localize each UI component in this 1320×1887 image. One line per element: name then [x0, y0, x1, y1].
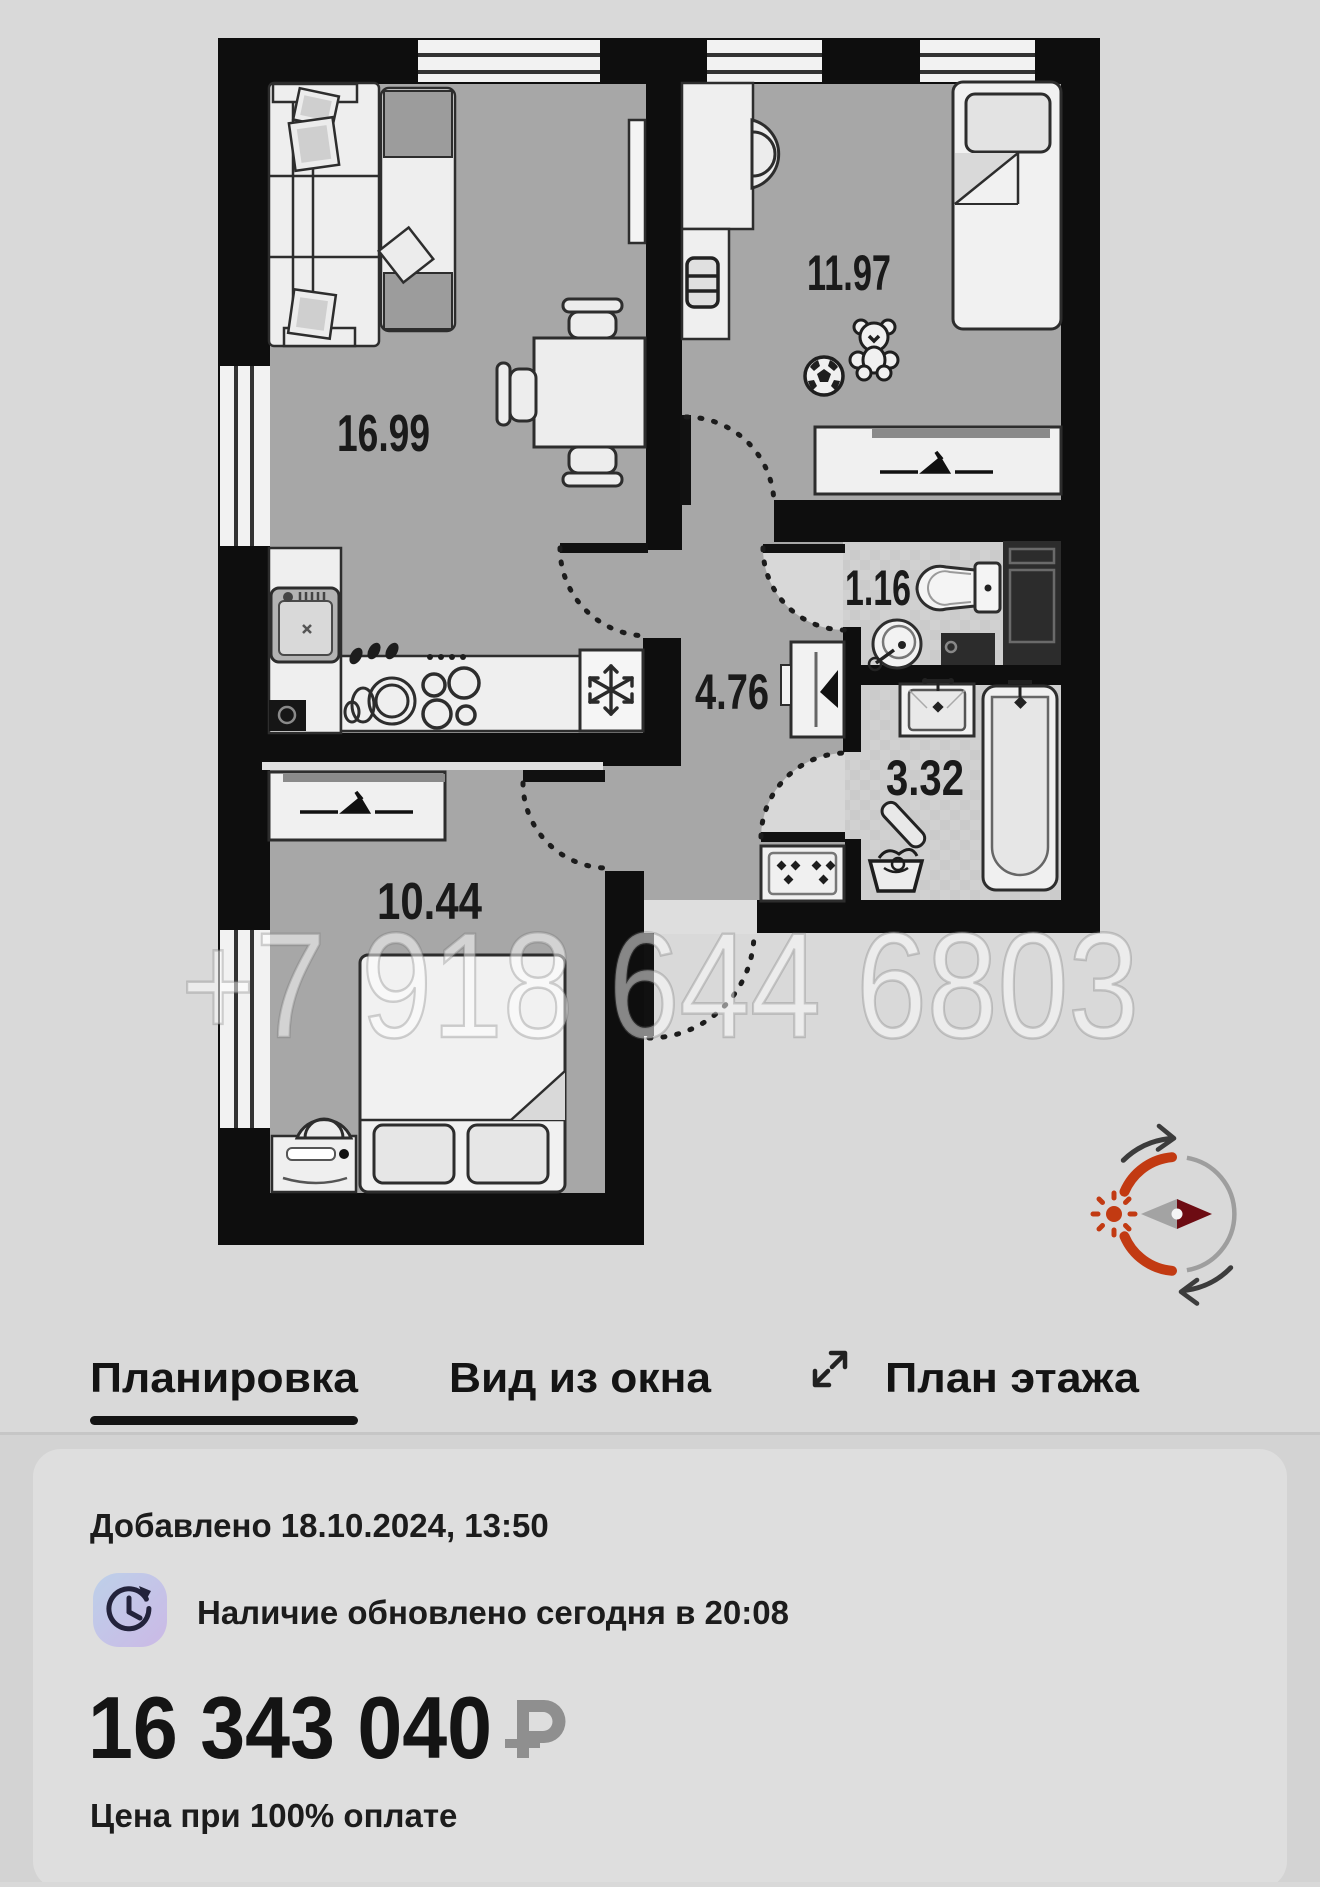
svg-text:3.32: 3.32 [886, 750, 964, 806]
svg-text:16 343 040: 16 343 040 [88, 1678, 492, 1777]
svg-text:Цена при 100% оплате: Цена при 100% оплате [90, 1797, 457, 1834]
svg-text:Вид из окна: Вид из окна [449, 1354, 712, 1401]
svg-text:16.99: 16.99 [337, 405, 430, 463]
svg-text:План этажа: План этажа [885, 1354, 1140, 1401]
svg-text:+7 918 644 6803: +7 918 644 6803 [181, 901, 1139, 1069]
svg-text:1.16: 1.16 [845, 560, 911, 616]
svg-text:4.76: 4.76 [695, 664, 769, 720]
svg-text:Наличие обновлено сегодня в 20: Наличие обновлено сегодня в 20:08 [197, 1594, 789, 1631]
svg-text:Планировка: Планировка [90, 1354, 359, 1401]
svg-text:Добавлено 18.10.2024, 13:50: Добавлено 18.10.2024, 13:50 [90, 1507, 549, 1544]
svg-text:11.97: 11.97 [807, 245, 891, 301]
